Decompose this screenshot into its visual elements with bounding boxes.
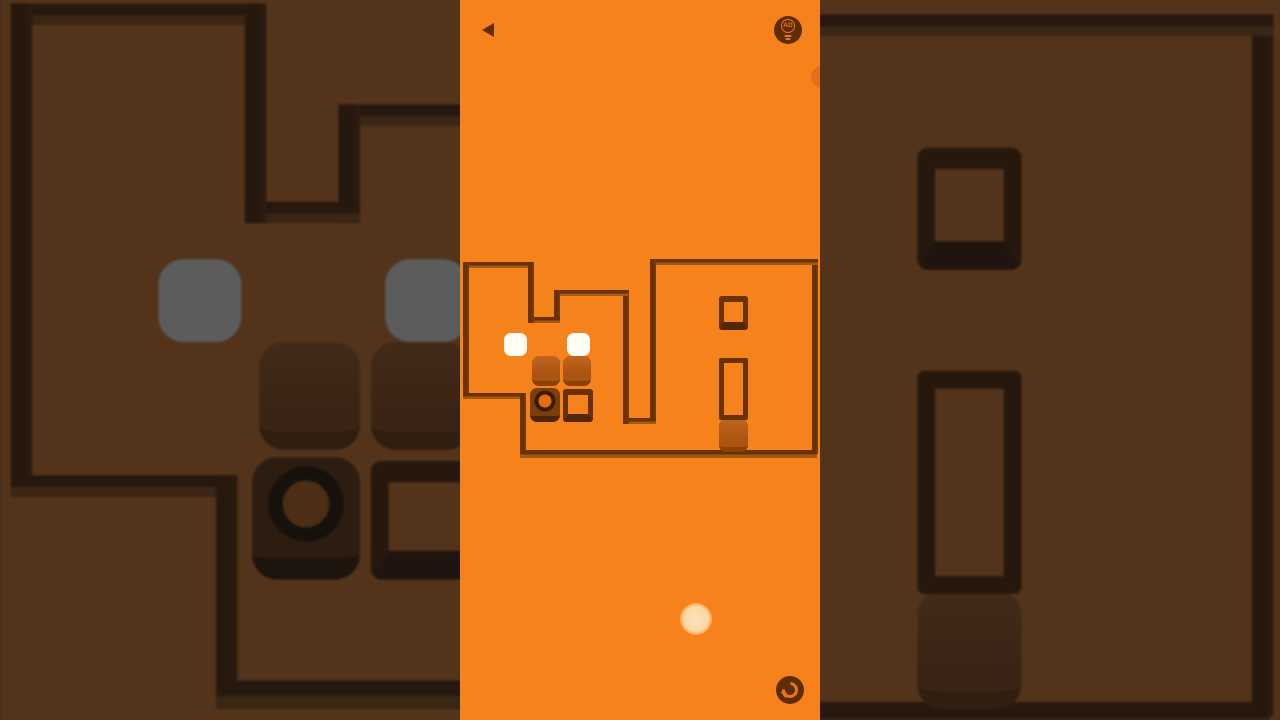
pocket-block [250, 457, 360, 579]
restart-button[interactable] [776, 676, 804, 704]
hint-ad-button[interactable]: AD [774, 16, 802, 44]
maze-wall [463, 262, 534, 268]
push-block [371, 342, 460, 450]
push-block [257, 342, 358, 450]
side-panel-left-dimmer: AD [0, 0, 460, 720]
push-block [918, 590, 1022, 709]
glow-particle [680, 603, 712, 635]
restart-arrowhead-icon [779, 692, 786, 699]
goal-dot [157, 257, 240, 340]
target-slot [370, 461, 460, 580]
maze-wall [528, 262, 534, 323]
maze-wall [463, 262, 469, 398]
maze-wall [216, 680, 460, 709]
maze-wall [520, 393, 526, 455]
tall-target-slot [719, 358, 748, 420]
maze-wall [554, 290, 628, 296]
maze-wall [216, 474, 238, 697]
game-scene: AD [460, 0, 820, 720]
target-slot [918, 148, 1022, 270]
target-slot [563, 389, 593, 422]
maze-wall [650, 259, 656, 424]
side-panel-right: AD [820, 0, 1280, 720]
push-block[interactable] [532, 356, 560, 386]
maze-wall [812, 259, 818, 454]
maze-wall [10, 474, 237, 496]
maze-wall [520, 450, 817, 458]
side-panel-left: AD [0, 0, 460, 720]
goal-dot [385, 257, 460, 340]
maze-wall [820, 15, 1272, 37]
side-scene-left: AD [0, 0, 460, 720]
screenshot-stage: AD AD AD [0, 0, 1280, 720]
goal-dot [504, 333, 527, 356]
maze-wall [463, 393, 526, 399]
side-panel-left-zoom: AD [0, 0, 460, 720]
bulb-base-line [786, 38, 791, 40]
side-scene-right: AD [820, 0, 1280, 720]
back-arrow-icon [482, 23, 494, 37]
edge-particle [811, 66, 820, 88]
tall-target-slot [918, 372, 1022, 595]
maze-wall [10, 2, 32, 492]
pocket-block[interactable] [530, 388, 561, 422]
lightbulb-icon: AD [781, 19, 795, 33]
push-block[interactable] [719, 419, 748, 452]
pocket-ball [538, 394, 551, 407]
maze-wall [246, 2, 268, 223]
maze-wall [10, 2, 264, 24]
side-panel-right-zoom: AD [820, 0, 1280, 720]
maze-wall [623, 290, 629, 424]
target-slot [719, 296, 748, 330]
goal-dot [567, 333, 590, 356]
maze-wall [1251, 15, 1273, 717]
ad-badge-label: AD [782, 20, 794, 31]
push-block[interactable] [563, 356, 591, 386]
back-button[interactable] [474, 14, 506, 46]
maze-wall [650, 259, 818, 265]
pocket-ball [282, 480, 329, 527]
game-screen: AD [460, 0, 820, 720]
bulb-base-line [785, 35, 792, 37]
maze-wall [820, 702, 1270, 720]
side-panel-right-dimmer: AD [820, 0, 1280, 720]
